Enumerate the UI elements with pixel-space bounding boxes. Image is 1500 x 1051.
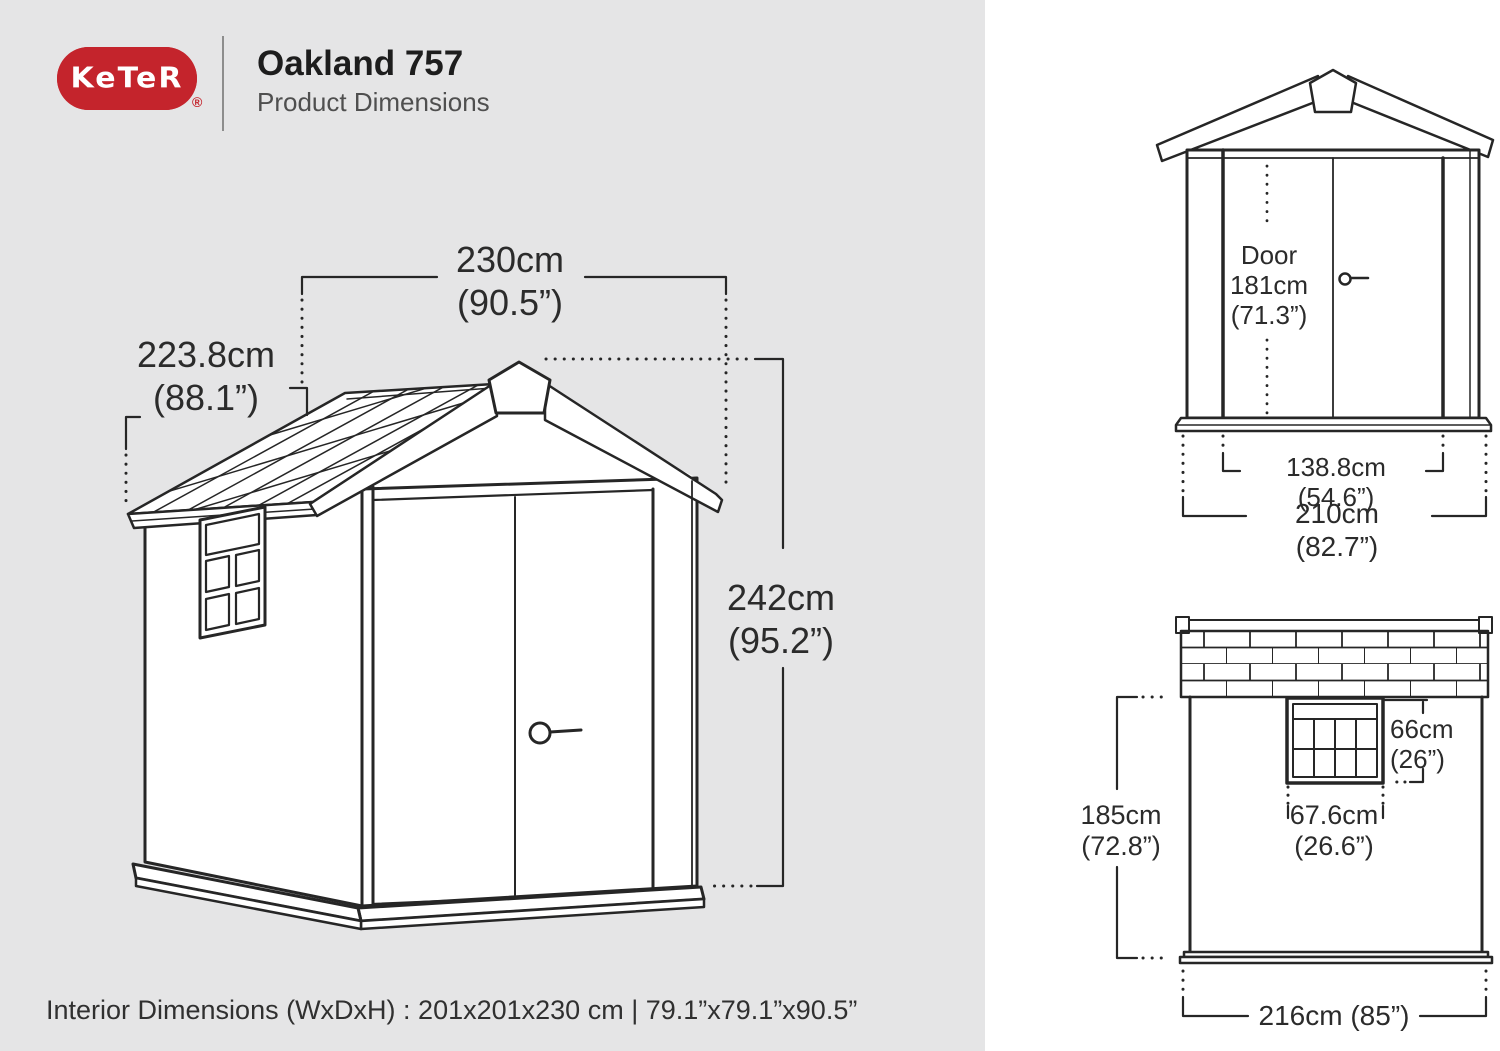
- front-wall: [362, 478, 697, 906]
- side-wall-height-label: 185cm (72.8”): [1080, 800, 1161, 862]
- product-dimensions-sheet: KeTeR ® Oakland 757 Product Dimensions: [0, 0, 1500, 1051]
- door-handle: [530, 723, 550, 743]
- front-view-drawing: [1157, 70, 1493, 431]
- side-overall-width-label: 216cm (85”): [1259, 1000, 1410, 1033]
- side-window-width-label: 67.6cm (26.6”): [1290, 800, 1379, 862]
- side-window-height-label: 66cm (26”): [1390, 714, 1454, 774]
- side-wall-window: [200, 507, 265, 638]
- side-view-drawing: [1176, 617, 1492, 963]
- interior-dimensions-text: Interior Dimensions (WxDxH) : 201x201x23…: [46, 995, 857, 1026]
- main-width-label: 230cm (90.5”): [456, 238, 564, 324]
- front-overall-width-label: 210cm (82.7”): [1256, 498, 1419, 564]
- roof-shingle-band: [1181, 631, 1488, 697]
- main-height-label: 242cm (95.2”): [727, 576, 835, 662]
- main-depth-label: 223.8cm (88.1”): [137, 333, 275, 419]
- front-door-handle: [1340, 274, 1351, 285]
- front-door-label: Door 181cm (71.3”): [1230, 240, 1308, 330]
- roof-apex-cap: [489, 362, 550, 413]
- side-view-window: [1287, 698, 1383, 783]
